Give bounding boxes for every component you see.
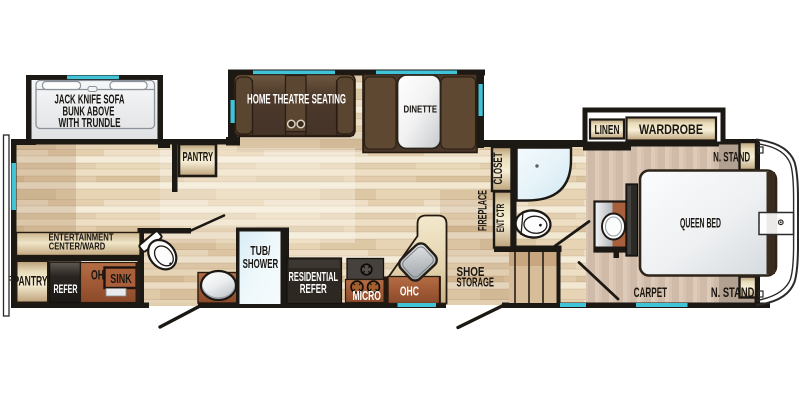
svg-text:N. STAND: N. STAND <box>711 284 755 300</box>
svg-text:CARPET: CARPET <box>634 285 668 301</box>
svg-text:WITH TRUNDLE: WITH TRUNDLE <box>59 116 121 130</box>
svg-text:ENT CTR: ENT CTR <box>494 204 506 233</box>
svg-text:DINETTE: DINETTE <box>404 104 438 116</box>
svg-text:OHC: OHC <box>400 285 419 299</box>
svg-text:PANTRY: PANTRY <box>14 274 48 289</box>
svg-text:REFER: REFER <box>300 282 327 296</box>
svg-text:QUEEN BED: QUEEN BED <box>680 216 721 231</box>
svg-text:FIREPLACE: FIREPLACE <box>477 190 490 231</box>
svg-text:N. STAND: N. STAND <box>713 151 750 165</box>
svg-text:LINEN: LINEN <box>595 124 620 138</box>
svg-text:REFER: REFER <box>54 284 79 297</box>
svg-text:MICRO: MICRO <box>352 290 381 304</box>
svg-text:STORAGE: STORAGE <box>457 276 495 290</box>
svg-text:OH: OH <box>91 268 104 283</box>
svg-text:SHOWER: SHOWER <box>243 258 279 272</box>
svg-text:CENTER/WARD: CENTER/WARD <box>49 240 106 252</box>
svg-text:HOME THEATRE SEATING: HOME THEATRE SEATING <box>247 93 346 107</box>
svg-text:WARDROBE: WARDROBE <box>639 121 703 137</box>
svg-text:PANTRY: PANTRY <box>183 150 214 164</box>
svg-text:CLOSET: CLOSET <box>493 152 506 185</box>
svg-text:SINK: SINK <box>110 272 132 286</box>
